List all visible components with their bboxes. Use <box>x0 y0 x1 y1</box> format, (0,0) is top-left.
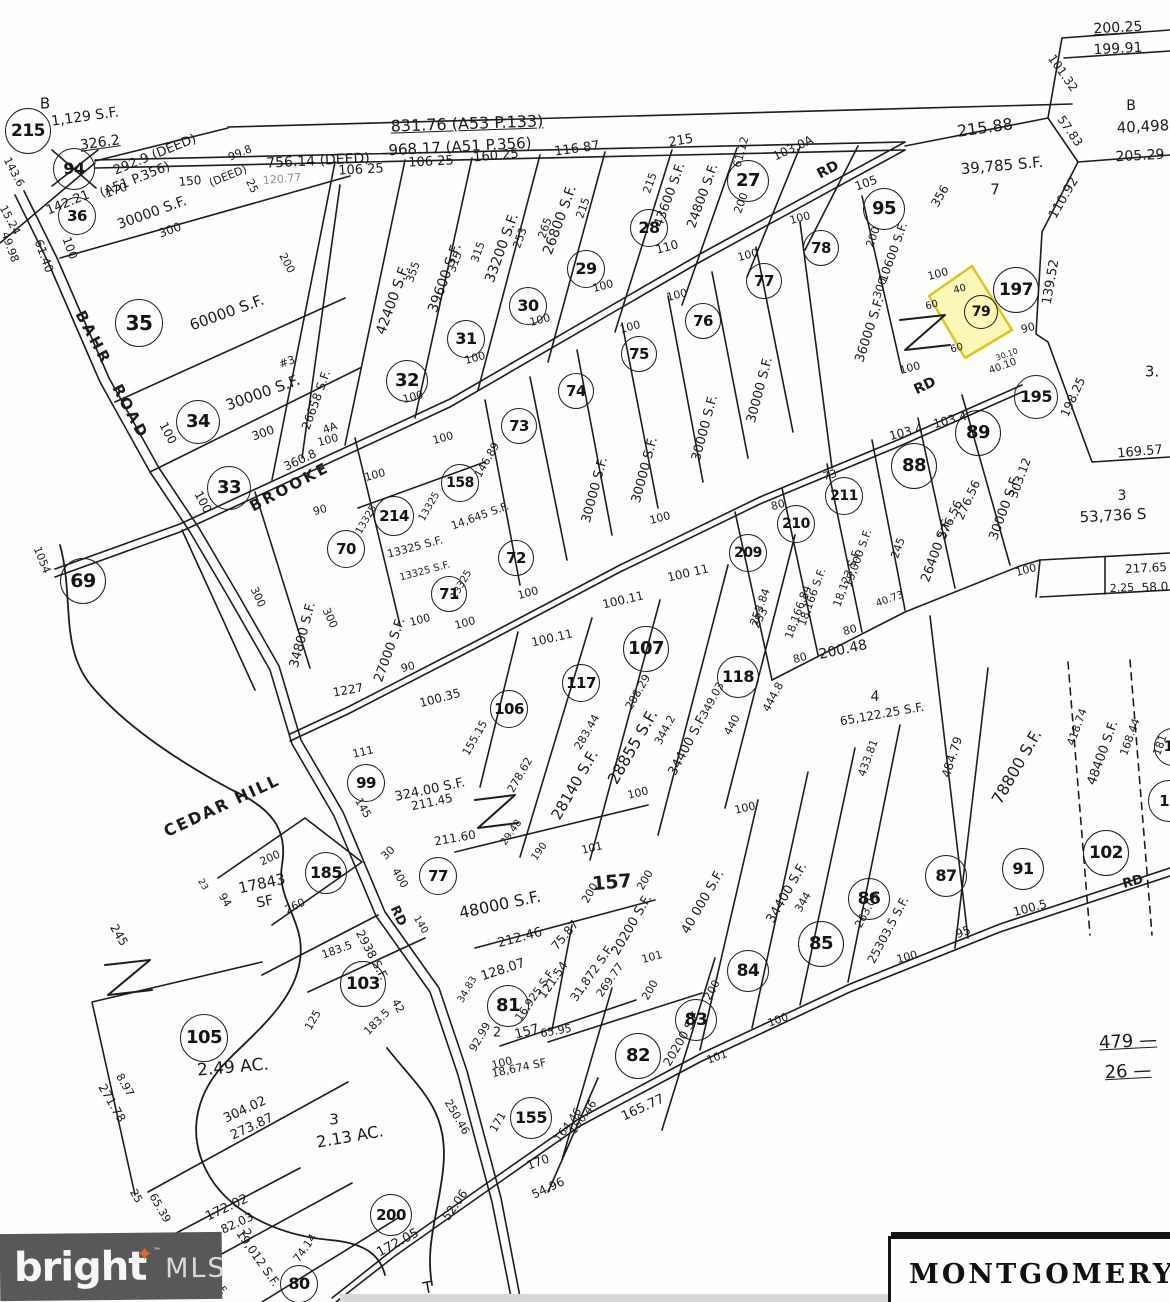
lot-number-badge: 103 <box>340 961 386 1007</box>
lot-number-badge: 197 <box>993 267 1039 313</box>
lot-number-badge: 77 <box>746 263 782 299</box>
lot-number-badge: 27 <box>727 160 769 202</box>
lot-number-badge: 77 <box>419 857 457 895</box>
map-label: 40,498 <box>1116 118 1169 136</box>
lot-number-badge: 209 <box>729 534 767 572</box>
map-label: 205.29 <box>1115 148 1165 165</box>
lot-number-badge: 74 <box>558 373 594 409</box>
lot-number-badge: 200 <box>370 1194 412 1236</box>
map-label: 160 25 <box>473 148 519 165</box>
lot-number-badge: 99 <box>347 764 385 802</box>
lot-number-badge: 102 <box>1083 830 1129 876</box>
lot-number-badge: 117 <box>562 664 600 702</box>
trademark-symbol: ™ <box>153 1246 161 1255</box>
plat-map: bright ✦ ™ MLS MONTGOMERY 21594363534333… <box>0 0 1170 1302</box>
map-label: 58.0 <box>1141 580 1168 593</box>
lot-number-badge: 91 <box>1002 848 1044 890</box>
lot-number-badge: 75 <box>621 336 657 372</box>
map-label: 3. <box>1145 365 1159 380</box>
lot-number-badge: 31 <box>447 320 485 358</box>
lot-number-badge: 82 <box>615 1033 661 1079</box>
county-name: MONTGOMERY <box>909 1259 1170 1290</box>
county-title-block: MONTGOMERY <box>888 1236 1170 1302</box>
lot-number-badge: 105 <box>180 1014 228 1062</box>
map-label: 217.65 <box>1125 561 1168 575</box>
lot-number-badge: 81 <box>487 985 529 1027</box>
map-label: B <box>1126 99 1136 113</box>
map-label: 2.25 <box>1109 582 1134 594</box>
map-label: 80 <box>792 651 808 665</box>
lot-number-badge: 89 <box>955 410 1001 456</box>
lot-number-badge: 118 <box>717 656 759 698</box>
map-label: 4 <box>871 690 880 704</box>
lot-number-badge: 78 <box>803 230 839 266</box>
lot-number-badge: 95 <box>863 188 905 230</box>
lot-number-badge: 83 <box>675 999 717 1041</box>
lot-number-badge: 155 <box>510 1097 552 1139</box>
logo-suffix: MLS <box>165 1253 227 1285</box>
lot-number-badge: 211 <box>825 477 863 515</box>
lot-number-badge: 88 <box>891 443 937 489</box>
map-label: 200.25 <box>1093 20 1143 37</box>
map-label: 90 <box>400 660 416 674</box>
lot-number-badge: 33 <box>207 466 251 510</box>
lot-number-badge: 36 <box>58 197 96 235</box>
lot-number-badge: 72 <box>498 540 534 576</box>
lot-number-badge: 87 <box>925 855 967 897</box>
map-label: 26 — <box>1104 1062 1152 1082</box>
map-label: 53,736 S <box>1079 507 1146 525</box>
lot-number-badge: 195 <box>1014 375 1058 419</box>
lot-number-badge: 30 <box>509 287 547 325</box>
lot-number-badge: 70 <box>327 530 365 568</box>
creek-line <box>60 545 385 1275</box>
lot-number-badge: 214 <box>374 496 414 536</box>
lot-number-badge: 107 <box>623 626 669 672</box>
star-icon: ✦ <box>136 1241 153 1265</box>
map-label: 120.77 <box>262 172 301 186</box>
lot-number-badge: 71 <box>431 576 467 612</box>
map-label: 150 <box>178 174 202 188</box>
lot-number-badge: 69 <box>60 558 106 604</box>
lot-number-badge: 80 <box>280 1265 318 1302</box>
lot-number-badge: 106 <box>490 690 528 728</box>
lot-number-badge: 34 <box>176 400 220 444</box>
map-label: 106 25 <box>338 162 384 177</box>
lot-number-badge: 85 <box>798 921 844 967</box>
map-label: 90 <box>1020 321 1036 335</box>
lot-number-badge: 94 <box>53 148 95 190</box>
lot-number-badge: 79 <box>964 295 998 329</box>
logo-wordmark: bright <box>14 1243 147 1290</box>
lot-number-badge: 84 <box>727 950 769 992</box>
lot-number-badge: 185 <box>305 852 347 894</box>
map-label: 199.91 <box>1093 41 1143 58</box>
lot-number-badge: 32 <box>386 360 428 402</box>
map-label: 169.57 <box>1117 444 1163 461</box>
lot-number-badge: 73 <box>501 408 537 444</box>
lot-number-badge: 86 <box>848 878 890 920</box>
map-label: 3 <box>1118 489 1127 503</box>
map-label: B <box>40 97 50 112</box>
map-label: 80 <box>842 623 858 637</box>
map-label: 106 25 <box>408 154 454 169</box>
map-label: 2 <box>493 1027 501 1040</box>
bright-mls-logo: bright ✦ ™ MLS <box>0 1232 222 1301</box>
lot-number-badge: 35 <box>115 299 163 347</box>
lot-number-badge: 29 <box>567 250 605 288</box>
lot-number-badge: 76 <box>685 303 721 339</box>
lot-number-badge: 215 <box>5 108 51 154</box>
lot-number-badge: 28 <box>630 209 668 247</box>
map-label: 7 <box>990 183 1000 198</box>
lot-number-badge: 210 <box>777 505 815 543</box>
map-label: 3 <box>329 1113 339 1128</box>
map-label: SF <box>255 893 274 910</box>
map-label: 479 — <box>1099 1031 1158 1052</box>
lot-number-badge: 158 <box>441 464 479 502</box>
map-label: 90 <box>312 503 328 517</box>
